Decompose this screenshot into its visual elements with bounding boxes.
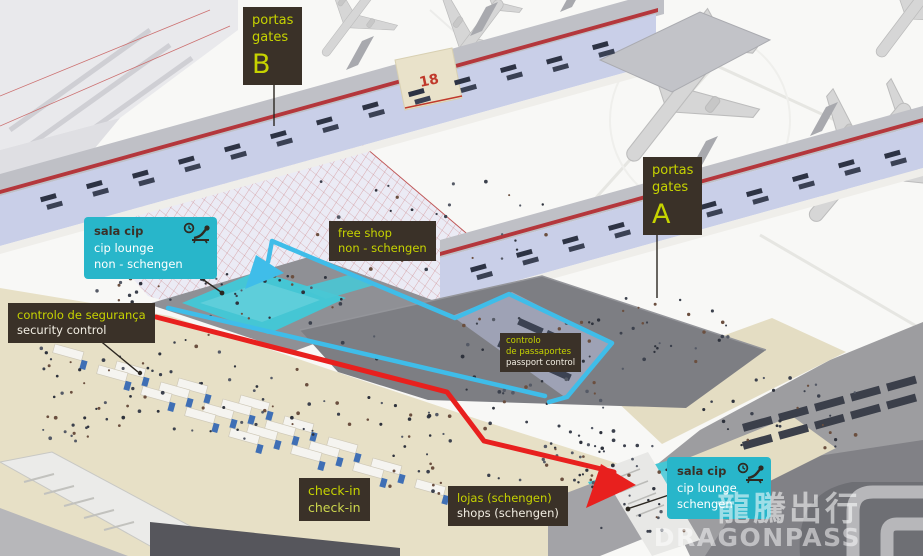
gates-a-line1: portas — [652, 162, 693, 179]
gates-b-label: portas gates B — [243, 7, 302, 85]
check-in-line1: check-in — [308, 483, 361, 500]
gates-a-line2: gates — [652, 179, 693, 196]
free-shop-line1: free shop — [338, 226, 427, 241]
passport-line3: passport control — [506, 358, 575, 369]
check-in-line2: check-in — [308, 500, 361, 517]
check-in-label: check-in check-in — [299, 478, 370, 521]
passport-control-label: controlo de passaportes passport control — [500, 333, 581, 372]
shops-schengen-label: lojas (schengen) shops (schengen) — [448, 486, 568, 526]
cip-lounge-schengen-label: sala cip cip lounge schengen — [667, 457, 771, 519]
security-control-label: controlo de segurança security control — [8, 303, 155, 343]
gates-a-label: portas gates A — [643, 157, 702, 235]
free-shop-line2: non - schengen — [338, 241, 427, 256]
cip-ns-line1: sala cip — [94, 223, 183, 240]
gates-b-letter: B — [252, 51, 293, 79]
shops-line2: shops (schengen) — [457, 506, 559, 521]
cip-lounge-icon — [182, 222, 212, 249]
cip-s-line1: sala cip — [677, 463, 737, 480]
security-line1: controlo de segurança — [17, 308, 146, 323]
cip-s-line3: schengen — [677, 496, 737, 513]
airport-terminal-map: 18 — [0, 0, 923, 556]
passport-line2: de passaportes — [506, 347, 575, 358]
security-line2: security control — [17, 323, 146, 338]
gates-b-line1: portas — [252, 12, 293, 29]
gates-b-line2: gates — [252, 29, 293, 46]
cip-ns-line3: non - schengen — [94, 256, 183, 273]
cip-lounge-non-schengen-label: sala cip cip lounge non - schengen — [84, 217, 217, 279]
passport-line1: controlo — [506, 336, 575, 347]
gates-a-letter: A — [652, 201, 693, 229]
shops-line1: lojas (schengen) — [457, 491, 559, 506]
cip-s-line2: cip lounge — [677, 480, 737, 497]
cip-ns-line2: cip lounge — [94, 240, 183, 257]
cip-lounge-icon — [736, 462, 766, 489]
free-shop-label: free shop non - schengen — [329, 221, 436, 261]
